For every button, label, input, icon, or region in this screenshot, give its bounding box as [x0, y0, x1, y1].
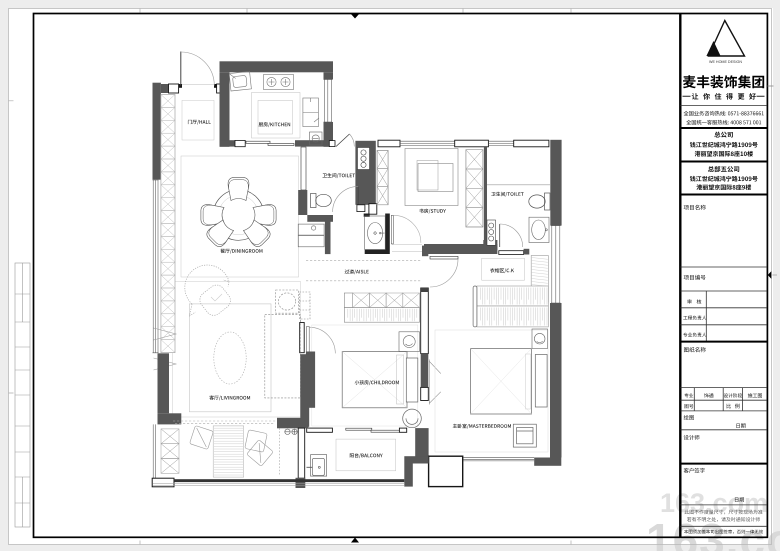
svg-text:WE HOME DESIGN: WE HOME DESIGN — [709, 60, 743, 64]
svg-text:163.com: 163.com — [660, 488, 768, 518]
